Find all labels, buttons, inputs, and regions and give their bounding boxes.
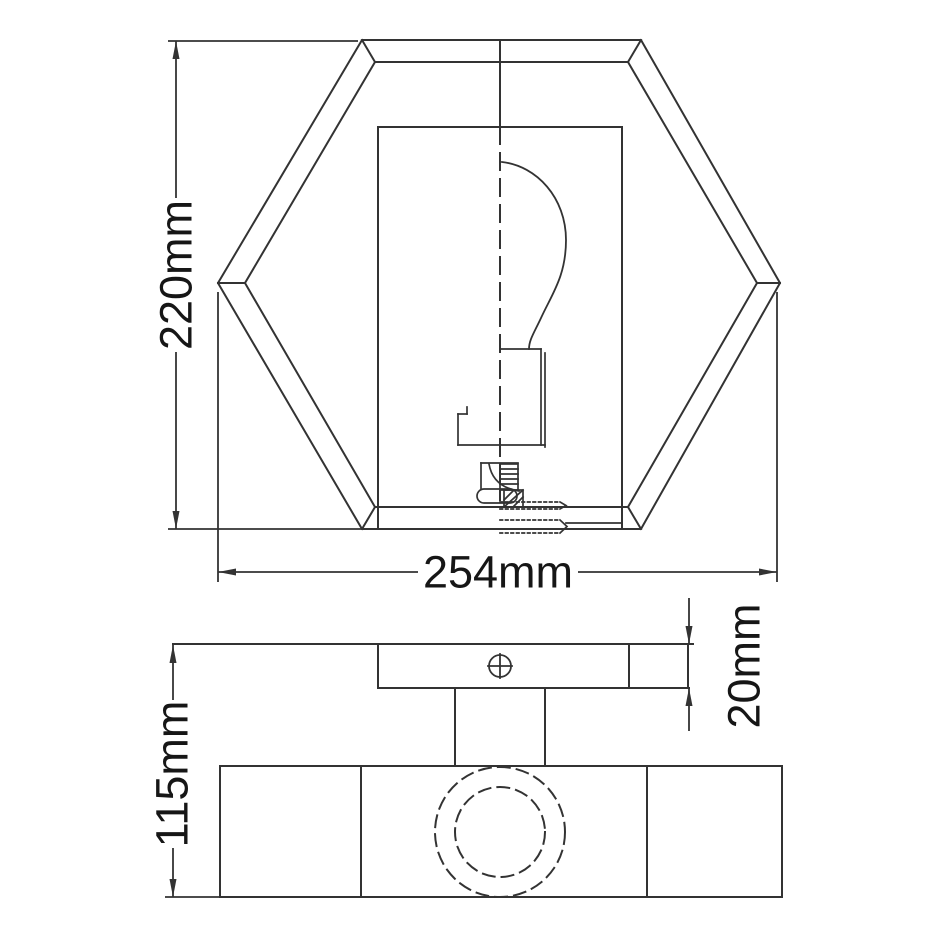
arrowhead-left — [218, 569, 236, 576]
front-width-label: 254mm — [423, 547, 573, 598]
bulb-outline — [502, 162, 566, 349]
lamp-hole-dashed-circles — [435, 767, 565, 897]
front-view — [218, 40, 780, 533]
arrowhead-up — [170, 645, 177, 663]
arrowhead-right — [759, 569, 777, 576]
arrowhead-down — [173, 511, 180, 529]
plate-thickness-label: 20mm — [719, 603, 770, 728]
arrowhead-down — [686, 626, 693, 644]
technical-drawing-page: 220mm 254mm — [0, 0, 940, 941]
arrowhead-down — [170, 879, 177, 897]
front-height-label: 220mm — [151, 200, 202, 350]
lamp-socket — [458, 349, 622, 533]
screw-icon — [488, 654, 512, 678]
side-view — [173, 644, 782, 897]
mounting-plate — [173, 644, 693, 688]
stem — [455, 688, 545, 766]
lamp-technical-drawing: 220mm 254mm — [0, 0, 940, 941]
arrowhead-up — [686, 688, 693, 706]
arrowhead-up — [173, 41, 180, 59]
side-height-label: 115mm — [147, 701, 198, 848]
